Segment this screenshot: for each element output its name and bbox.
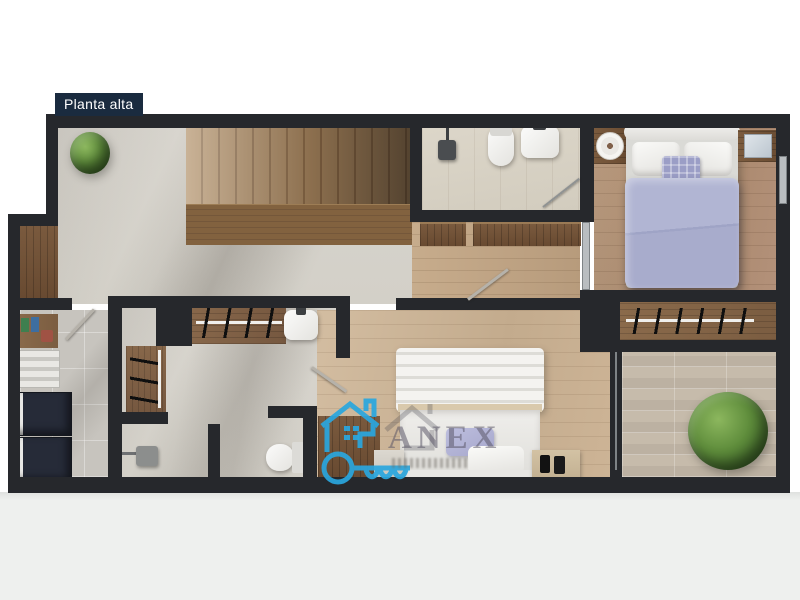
wall-toilet-nook [268, 406, 317, 418]
sink [521, 126, 559, 158]
indoor-plant [70, 132, 110, 174]
floor-plan-render: Planta alta ANE [0, 0, 800, 600]
hangers-icon [626, 308, 754, 334]
washer [16, 392, 72, 436]
decor-object [540, 455, 550, 473]
bottle [21, 318, 29, 332]
bedroom-sliding-door [582, 222, 590, 290]
background-band [0, 492, 800, 600]
table-lamp [596, 132, 624, 160]
outer-wall-left-lower [8, 214, 20, 493]
wall-walkin-east-lower [303, 410, 317, 478]
shower-head-icon [136, 446, 158, 466]
shower-arm [122, 452, 136, 455]
closet-rod [158, 350, 161, 408]
decor-object [554, 456, 565, 474]
book [744, 134, 772, 158]
window [779, 156, 787, 204]
toilet [266, 444, 294, 471]
plan-title-label: Planta alta [55, 93, 143, 116]
wall-bedroom-west [580, 290, 594, 352]
terrace-plant [688, 392, 768, 470]
wall-bedroom2-north [396, 298, 582, 310]
outer-wall-bottom [8, 477, 790, 493]
wall-closet-ledge [122, 412, 168, 424]
hangers-icon [130, 350, 158, 408]
nightstand [374, 450, 404, 478]
wall-closet-north [594, 290, 776, 302]
wall-bathroom-south [410, 210, 592, 222]
wall-stair-bathroom [410, 120, 422, 222]
wall-bathroom-bedroom [580, 122, 594, 222]
basket [41, 330, 53, 342]
stair-landing [186, 204, 412, 245]
bottle [31, 317, 39, 332]
hangers-icon [196, 308, 282, 338]
duvet [625, 178, 739, 288]
towel-shelf [14, 350, 60, 388]
wall-closet-south [594, 340, 776, 352]
shower-head-icon [438, 140, 456, 160]
wall-walkin-north [108, 296, 346, 308]
terrace-sliding-glass [615, 352, 617, 470]
dresser [318, 416, 380, 477]
wall-laundry-north [20, 298, 72, 310]
wall-laundry-east [108, 296, 122, 478]
wall-shower-divider [208, 424, 220, 478]
wall-walkin-corner [156, 296, 192, 346]
duvet-folds [396, 348, 544, 412]
staircase [186, 128, 412, 204]
hall-cabinet [420, 222, 466, 246]
outer-wall-left-upper [46, 114, 58, 226]
hall-cabinet [473, 222, 581, 246]
wall-closet-side [594, 290, 620, 352]
